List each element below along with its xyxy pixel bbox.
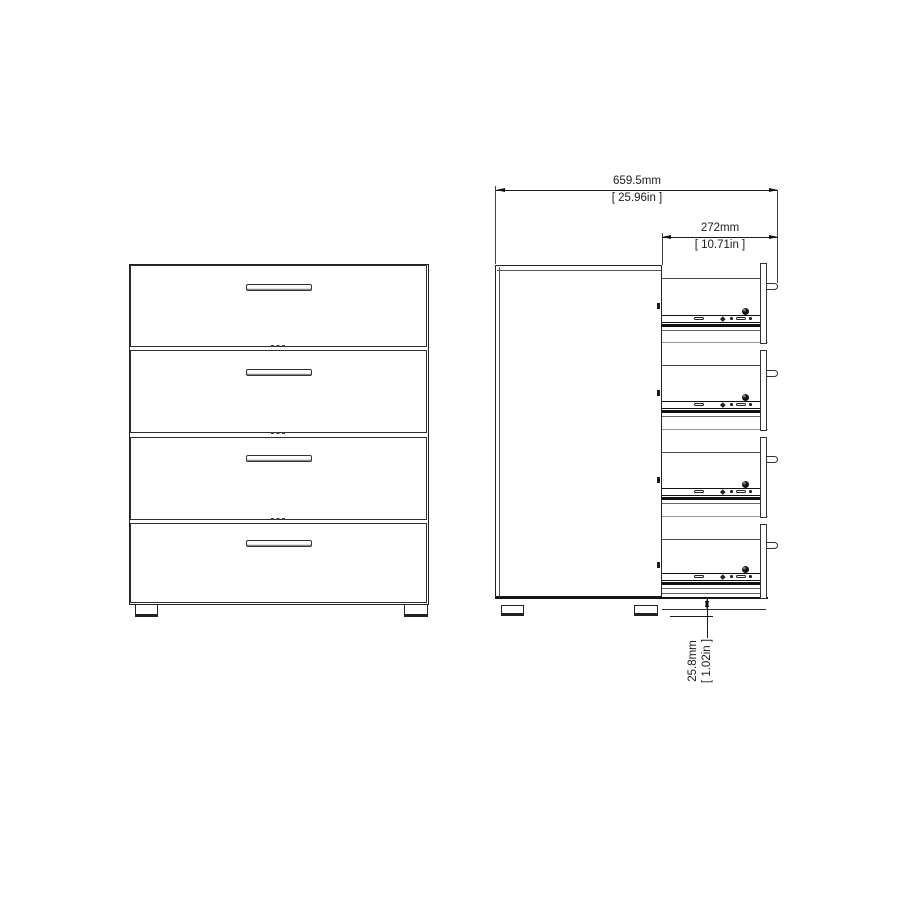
dim-width-in: [ 25.96in ] [577, 192, 697, 205]
drawer-front-bottom-line [662, 609, 766, 610]
bottom-edge-line [662, 597, 768, 600]
slide-pin-icon [749, 403, 752, 406]
drawer-handle-4 [246, 540, 312, 547]
slide-rail [662, 315, 760, 323]
slide-slot [736, 317, 746, 321]
drawer-handle-2 [246, 369, 312, 376]
slide-rail-base [662, 324, 760, 327]
drawer-bottom-line [662, 429, 768, 430]
front-foot-right [404, 604, 428, 617]
slide-pin-icon [730, 490, 733, 493]
slide-pin-icon [749, 575, 752, 578]
drawer-bottom-line [662, 516, 768, 517]
drawer-handle-3 [246, 455, 312, 462]
slide-pin-icon [749, 317, 752, 320]
slide-lower-line [662, 416, 760, 417]
slide-cam-icon [720, 574, 725, 579]
slide-lower-line [662, 588, 760, 589]
slide-roller-icon [742, 566, 749, 573]
side-knob-2 [766, 370, 778, 377]
slide-rail [662, 488, 760, 496]
slide-pin-icon [730, 317, 733, 320]
slide-roller-icon [742, 394, 749, 401]
floor-reference-line [670, 616, 713, 617]
slide-rail [662, 401, 760, 409]
dimension-line [496, 190, 778, 191]
drawer-front-edge-4 [760, 524, 767, 599]
drawer-front-4 [130, 523, 427, 603]
side-panel-outline [495, 265, 662, 599]
slide-rail-base [662, 582, 760, 585]
drawer-handle-1 [246, 284, 312, 291]
side-knob-1 [766, 283, 778, 290]
drawer-front-3 [130, 437, 427, 520]
dimension-line [662, 237, 777, 238]
side-foot-rear [634, 605, 658, 616]
fitting-tick [657, 477, 660, 483]
arrow-left-icon [496, 188, 505, 192]
fitting-tick [657, 562, 660, 568]
top-panel-line [497, 270, 661, 271]
slide-roller-icon [742, 308, 749, 315]
side-knob-4 [766, 542, 778, 549]
side-panel-inner-line [499, 267, 500, 597]
slide-pin-icon [730, 403, 733, 406]
slide-lower-line [662, 330, 760, 331]
slide-pin-icon [730, 575, 733, 578]
slide-slot [694, 403, 704, 407]
dim-depth-in: [ 10.71in ] [662, 239, 778, 252]
slide-slot [694, 317, 704, 321]
arrow-down-icon [705, 601, 709, 610]
side-knob-3 [766, 456, 778, 463]
drawing-canvas: 659.5mm [ 25.96in ] 272mm [ 10.71in ] 25… [0, 0, 900, 900]
slide-lower-line [662, 503, 760, 504]
extension-line [495, 186, 496, 264]
dim-clearance-in: [ 1.02in ] [701, 632, 715, 690]
side-foot-front [501, 605, 524, 616]
slide-slot [736, 490, 746, 494]
dim-clearance-mm: 25.8mm [687, 632, 701, 690]
drawer-front-2 [130, 350, 427, 433]
drawer-front-edge-2 [760, 350, 767, 431]
drawer-front-edge-3 [760, 437, 767, 518]
slide-pin-icon [749, 490, 752, 493]
drawer-front-1 [130, 265, 427, 347]
compartment-line [662, 365, 760, 366]
drawer-gap-detail [271, 432, 287, 434]
slide-slot [694, 490, 704, 494]
dim-depth-mm: 272mm [662, 222, 778, 235]
drawer-front-edge-1 [760, 263, 767, 344]
slide-cam-icon [720, 316, 725, 321]
compartment-line [662, 539, 760, 540]
slide-cam-icon [720, 489, 725, 494]
slide-slot [694, 575, 704, 579]
front-foot-left [135, 604, 158, 617]
arrow-right-icon [769, 188, 778, 192]
drawer-gap-detail [271, 345, 287, 347]
slide-cam-icon [720, 402, 725, 407]
dim-width-mm: 659.5mm [577, 175, 697, 188]
fitting-tick [657, 303, 660, 309]
drawer-gap-detail [271, 518, 287, 520]
slide-slot [736, 403, 746, 407]
slide-roller-icon [742, 481, 749, 488]
slide-rail-base [662, 410, 760, 413]
bottom-panel-line [662, 593, 760, 594]
slide-rail-base [662, 497, 760, 500]
slide-slot [736, 575, 746, 579]
compartment-line [662, 452, 760, 453]
fitting-tick [657, 390, 660, 396]
slide-rail [662, 573, 760, 581]
compartment-line [662, 278, 760, 279]
dim-clearance-text: 25.8mm [ 1.02in ] [687, 632, 714, 690]
drawer-bottom-line [662, 342, 768, 343]
